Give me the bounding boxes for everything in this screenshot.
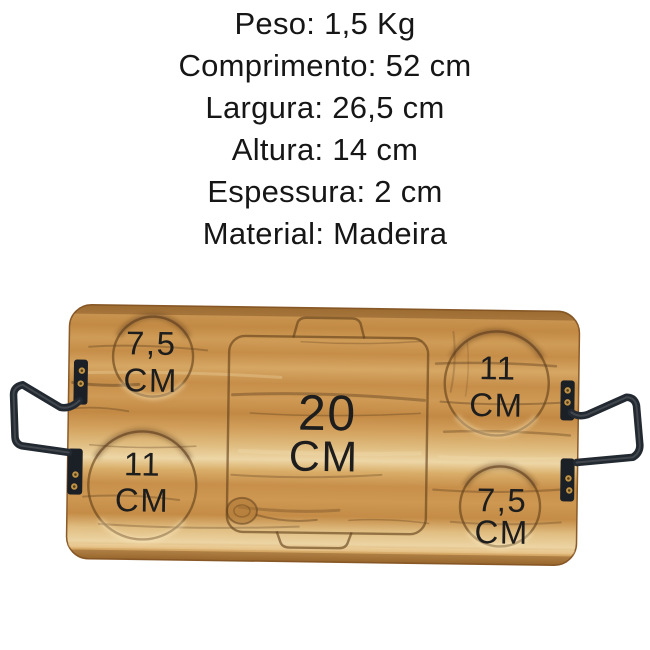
recess-unit-label-bottom-left: CM — [115, 481, 170, 519]
recess-size-label-bottom-left: 11 — [124, 445, 162, 483]
product-image: Peso: 1,5 Kg Comprimento: 52 cm Largura:… — [0, 0, 650, 650]
recess-unit-label-top-left: CM — [123, 361, 178, 399]
recess-unit-label-center: CM — [288, 433, 359, 482]
recess-unit-label-bottom-right: CM — [474, 513, 529, 551]
serving-board-photo: 7,5 CM 11 CM 20 CM 11 CM 7,5 CM — [0, 0, 650, 650]
recess-size-label-top-left: 7,5 — [126, 324, 177, 362]
recess-size-label-top-right: 11 — [479, 349, 517, 387]
recess-unit-label-top-right: CM — [469, 386, 524, 424]
right-handle-highlight — [571, 396, 641, 463]
